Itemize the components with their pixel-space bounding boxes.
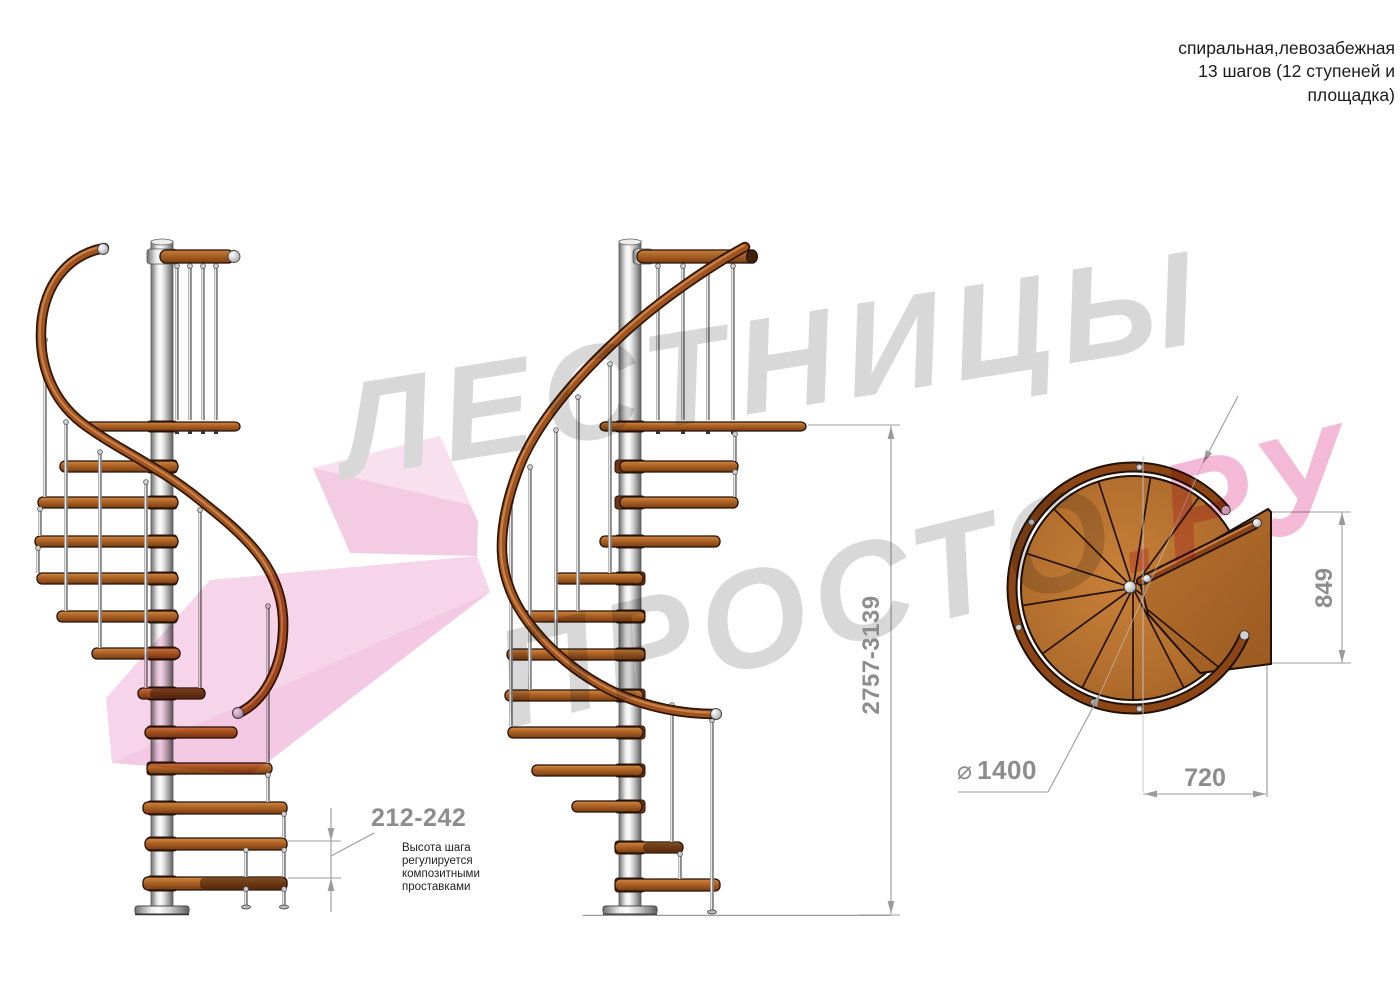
- step-board: [38, 497, 178, 508]
- note-step-height: Высота шага регулируется композитными пр…: [402, 842, 480, 894]
- step-board: [507, 649, 645, 660]
- title-line-1: спиральная,левозабежная: [1178, 37, 1395, 60]
- left-staircase-side-view: [35, 239, 289, 915]
- step-board: [35, 536, 178, 547]
- step-board: [145, 727, 237, 738]
- step-board: [145, 838, 287, 850]
- staircase-technical-drawing: [0, 0, 1400, 1000]
- step-board: [521, 611, 645, 622]
- step-board: [147, 763, 272, 774]
- title-line-2: 13 шагов (12 ступеней и: [1178, 60, 1395, 83]
- middle-staircase-side-view: [501, 239, 891, 915]
- step-board: [572, 801, 642, 812]
- step-board: [555, 573, 643, 584]
- center-pole-plan: [1124, 581, 1136, 593]
- title-block: спиральная,левозабежная 13 шагов (12 сту…: [1178, 37, 1395, 107]
- top-guard-rail: [160, 250, 234, 263]
- dimension-platform-width: 720: [1155, 764, 1255, 793]
- dimension-step-height: 212-242: [371, 804, 466, 833]
- step-board: [600, 536, 720, 547]
- dimension-total-height: 2757-3139: [858, 575, 886, 735]
- step-board: [620, 461, 738, 472]
- step-board: [92, 648, 180, 659]
- step-board: [615, 879, 720, 891]
- step-board: [143, 802, 287, 814]
- platform-board: [85, 422, 240, 431]
- platform-board: [600, 422, 806, 431]
- dimension-diameter: ⌀ 1400: [957, 755, 1037, 786]
- step-board: [508, 727, 643, 738]
- title-line-3: площадка): [1178, 84, 1395, 107]
- top-view-plan: [1012, 464, 1271, 712]
- diagram-page: ЛЕСТНИЦЫ ПРОСТО.РУ спиральная,левозабежн…: [0, 0, 1400, 1000]
- step-board: [532, 765, 643, 776]
- step-board: [620, 497, 738, 508]
- diameter-symbol-icon: ⌀: [957, 756, 972, 786]
- dimension-platform-depth: 849: [1311, 528, 1337, 648]
- step-board: [57, 611, 178, 622]
- step-board: [37, 573, 178, 584]
